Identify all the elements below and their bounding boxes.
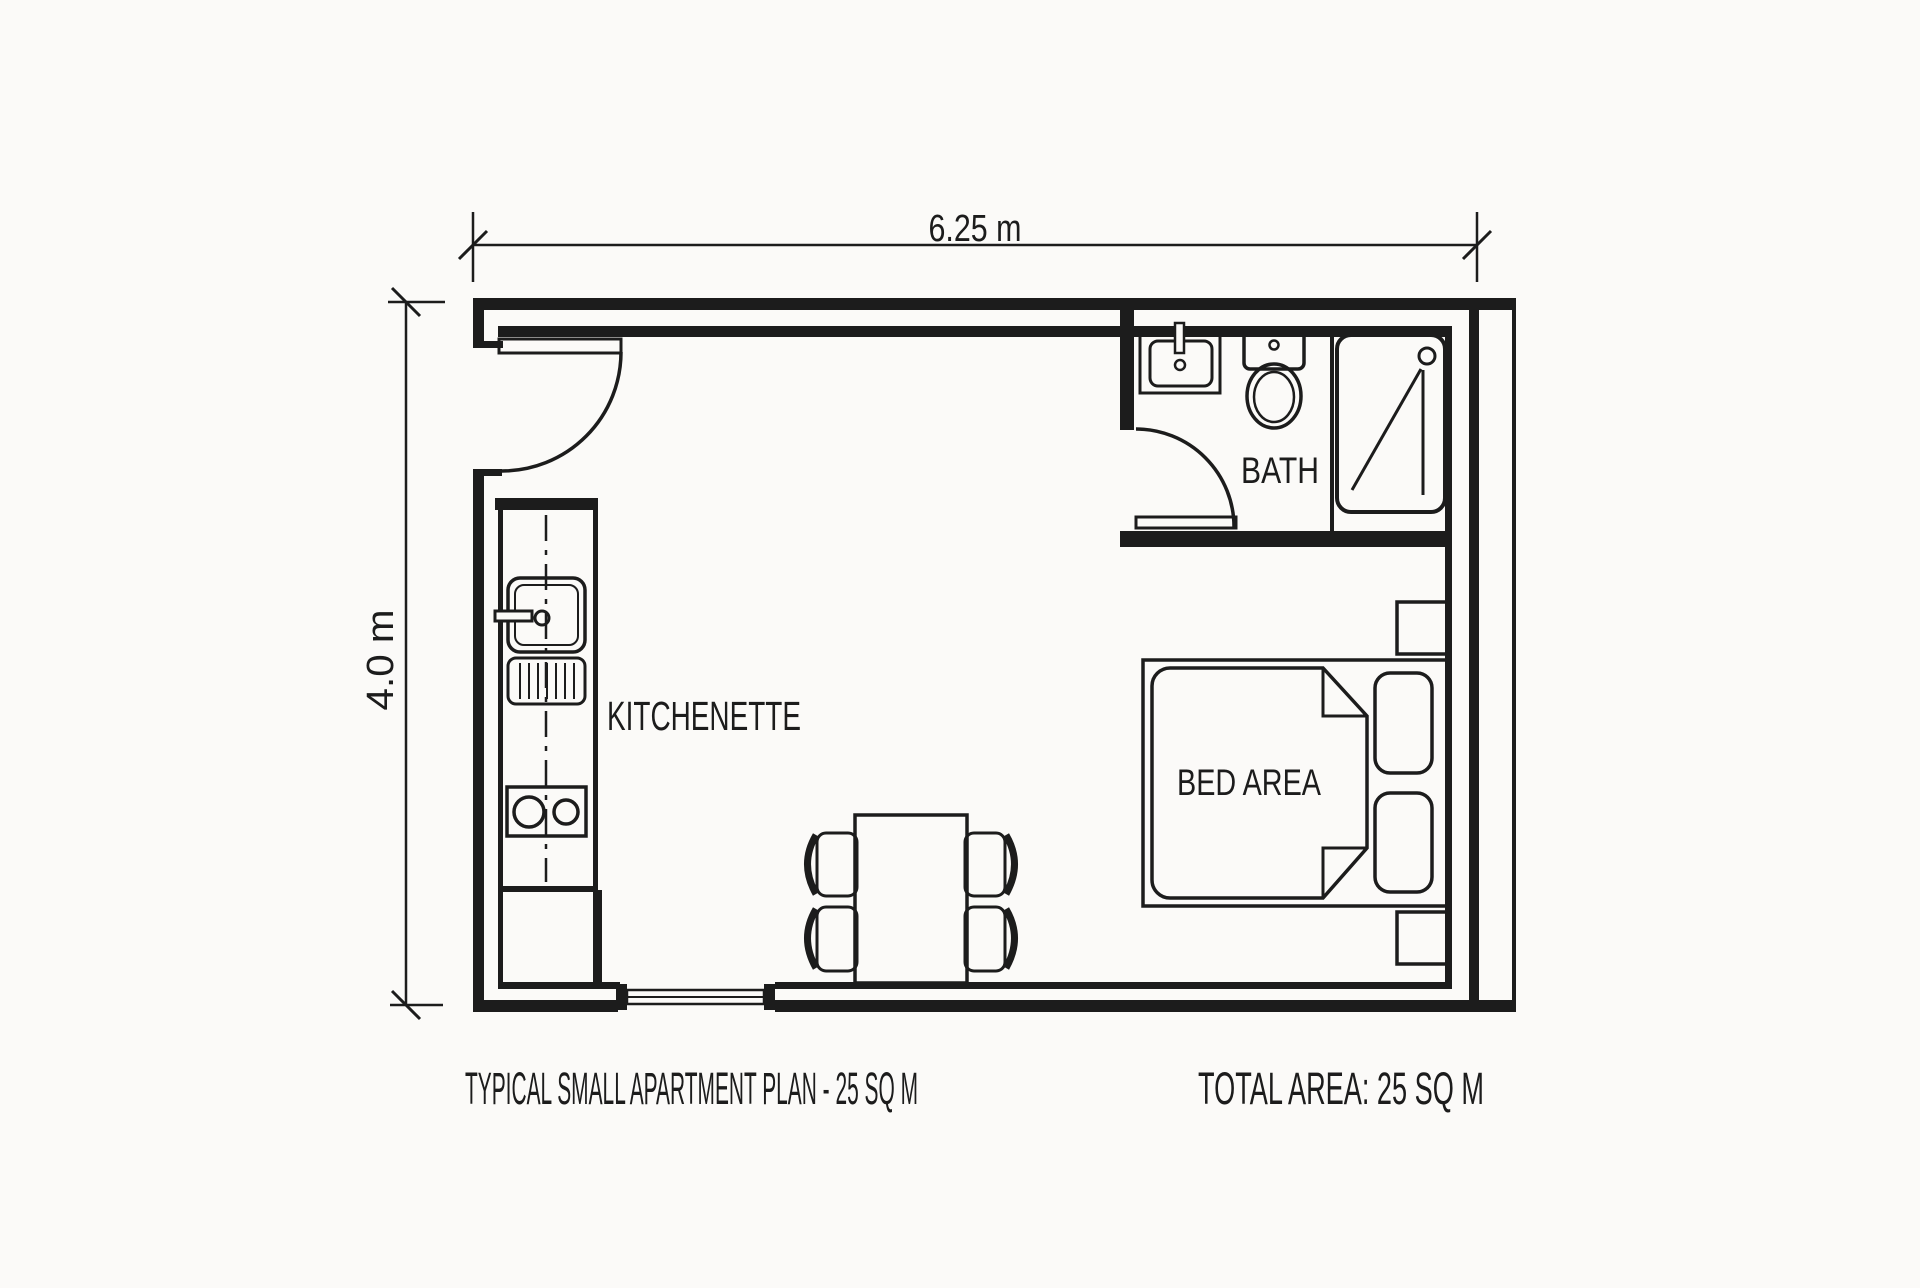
nightstand-bottom xyxy=(1397,912,1449,964)
width-dimension: 6.25 m xyxy=(459,208,1491,282)
chair-back-right-top xyxy=(1006,835,1015,894)
toilet-bowl-inner xyxy=(1254,372,1294,422)
counter-right-edge xyxy=(593,510,598,985)
right-wall-outer xyxy=(1469,298,1479,1012)
chair-back-left-bottom xyxy=(808,909,817,968)
total-area-note: TOTAL AREA: 25 SQ M xyxy=(1198,1063,1484,1114)
bed-area-label: BED AREA xyxy=(1177,762,1321,803)
bath-door-leaf xyxy=(1136,517,1236,528)
burner-left xyxy=(514,797,544,827)
counter-top-cap xyxy=(495,498,598,510)
bath-partition-wall xyxy=(1120,310,1134,430)
window-jamb-right xyxy=(764,984,775,1010)
floor-plan-page: 6.25 m 4.0 m KITCHENETTE BATH BED AREA T… xyxy=(0,0,1920,1288)
kitchen-counter xyxy=(495,498,602,985)
floor-plan-drawing: 6.25 m 4.0 m KITCHENETTE BATH BED AREA T… xyxy=(0,0,1920,1288)
window-jamb-left xyxy=(616,984,627,1010)
right-wall-profile-line xyxy=(1512,298,1516,1010)
shower xyxy=(1337,335,1445,512)
bath-bottom-wall xyxy=(1120,531,1452,547)
burner-right xyxy=(554,800,578,824)
chair-seat-right-top xyxy=(965,833,1005,896)
counter-left-edge xyxy=(498,505,503,985)
counter-step-edge xyxy=(598,890,602,985)
bottom-wall-outer-right xyxy=(775,1000,1516,1012)
kitchenette-label: KITCHENETTE xyxy=(607,693,801,739)
bath-door-swing-arc xyxy=(1136,429,1234,527)
shower-drain xyxy=(1419,348,1435,364)
kitchen-faucet-bar xyxy=(495,611,532,621)
entry-door-swing-arc xyxy=(502,352,621,471)
height-dimension: 4.0 m xyxy=(360,288,445,1019)
plan-title: TYPICAL SMALL APARTMENT PLAN - 25 SQ M xyxy=(465,1063,918,1114)
nightstand-top xyxy=(1397,602,1449,654)
chair-seat-left-bottom xyxy=(817,907,857,971)
chair-back-left-top xyxy=(808,835,817,894)
dining-table xyxy=(855,815,967,983)
left-wall-lower xyxy=(473,469,484,1012)
bathroom-vanity xyxy=(1140,323,1220,393)
height-dimension-label: 4.0 m xyxy=(360,610,402,711)
top-wall-inner xyxy=(498,326,1452,337)
shower-screen-wall xyxy=(1330,326,1334,531)
top-wall-outer xyxy=(473,298,1516,310)
dining-set xyxy=(808,815,1015,983)
width-dimension-label: 6.25 m xyxy=(929,208,1022,250)
window xyxy=(616,984,775,1010)
bath-door xyxy=(1136,429,1236,528)
bath-label: BATH xyxy=(1241,450,1319,491)
left-wall-door-stub xyxy=(473,298,484,347)
pillow-bottom xyxy=(1375,793,1432,892)
counter-divider xyxy=(498,886,598,892)
chair-seat-left-top xyxy=(817,833,857,896)
drainboard-grooves xyxy=(520,663,574,699)
vanity-drain-dot xyxy=(1175,360,1185,370)
entry-door-leaf xyxy=(499,339,621,353)
chair-seat-right-bottom xyxy=(965,907,1005,971)
chair-back-right-bottom xyxy=(1006,909,1015,968)
entry-door xyxy=(499,339,621,471)
vanity-faucet-bar xyxy=(1175,323,1184,353)
kitchen-sink xyxy=(495,578,585,704)
toilet-flush-dot xyxy=(1270,341,1279,350)
pillow-top xyxy=(1375,673,1432,773)
bottom-wall-outer-left xyxy=(473,1000,618,1012)
shower-slope-diagonal xyxy=(1352,369,1421,490)
toilet xyxy=(1244,330,1304,428)
